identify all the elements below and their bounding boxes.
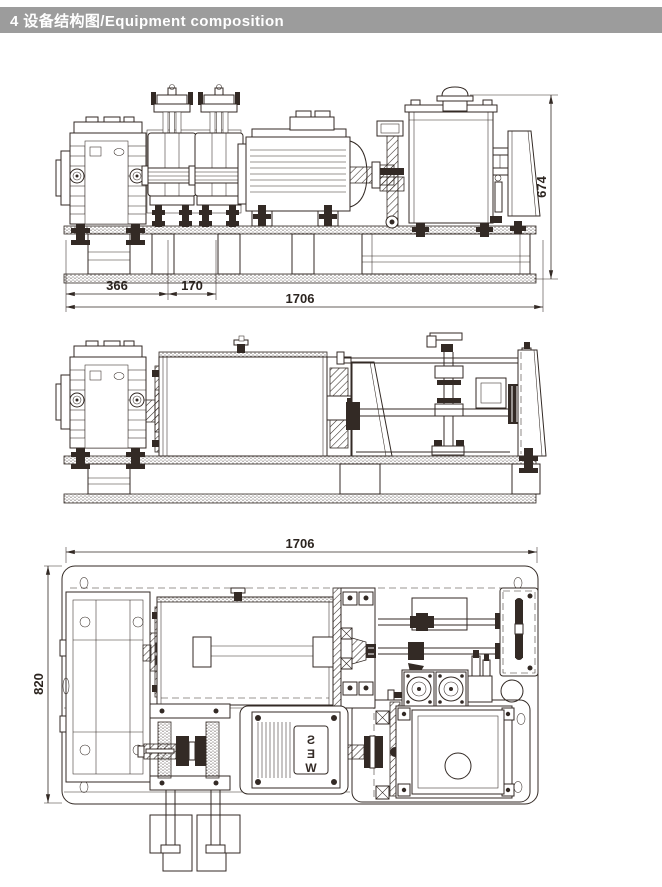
dim-front-left-label: 366: [106, 278, 128, 293]
oil-tank-front: [405, 87, 540, 237]
drive-coupling-plan: [138, 704, 230, 790]
sew-logo-letter-w: W: [305, 761, 317, 775]
dimension-plan-depth: 820: [31, 566, 62, 803]
equipment-drawing: 366 170 1706 674: [0, 0, 662, 887]
plan-view: 1706 820: [31, 536, 538, 871]
gearbox-plan: [60, 592, 150, 782]
front-elevation-view: 366 170 1706 674: [56, 85, 558, 313]
drum-plan: [157, 588, 333, 705]
motor-front: [238, 111, 394, 226]
piston-pumps-front: [142, 85, 249, 228]
dimension-plan-length: 1706: [66, 536, 537, 563]
drum-side: [159, 336, 357, 456]
gearbox-side: [56, 341, 146, 469]
dim-plan-depth-label: 820: [31, 673, 46, 695]
dim-front-total-label: 1706: [286, 291, 315, 306]
dim-front-mid-label: 170: [181, 278, 203, 293]
sew-logo-letter-s: S: [307, 733, 315, 747]
dim-front-height-label: 674: [534, 175, 549, 197]
chain-drive-front: [377, 121, 404, 228]
bearing-plate-plan: [333, 588, 376, 708]
agitator-assembly-side: [337, 333, 546, 473]
oil-tank-plan: [376, 706, 514, 799]
dim-plan-total-label: 1706: [286, 536, 315, 551]
side-section-view: [56, 333, 546, 503]
sew-logo-letter-e: E: [307, 747, 315, 761]
